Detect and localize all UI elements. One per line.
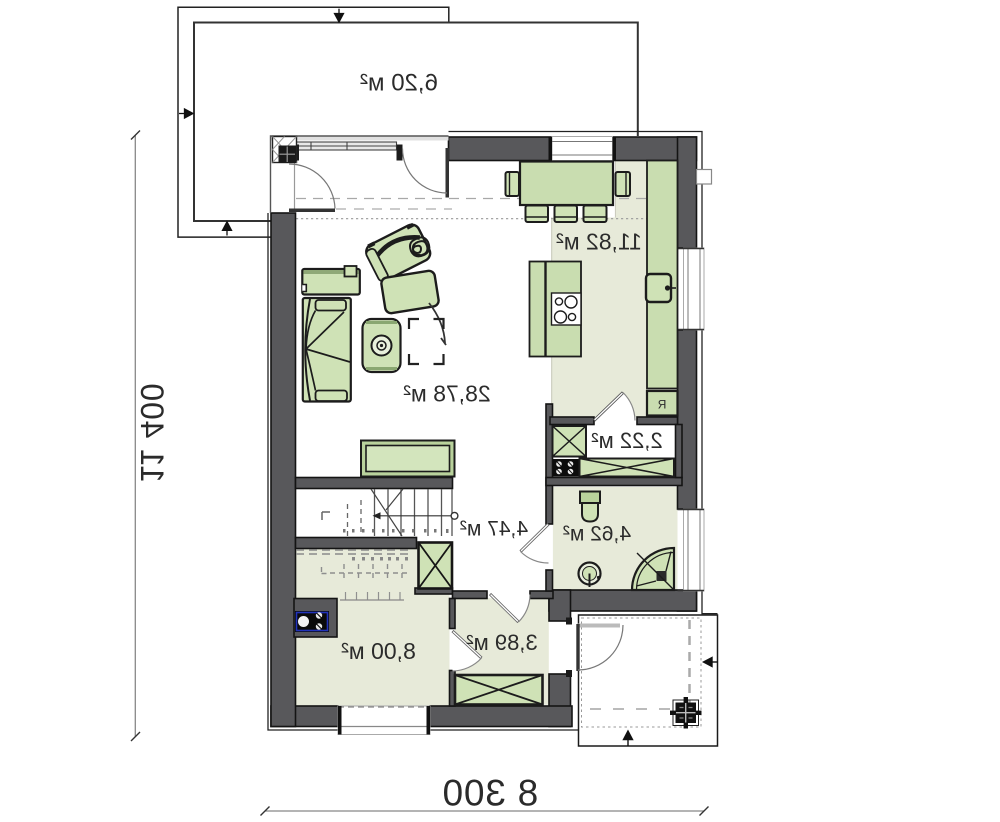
svg-text:2,22 м²: 2,22 м² [591, 428, 662, 453]
svg-text:11,82 м²: 11,82 м² [556, 229, 642, 255]
svg-text:28,78 м²: 28,78 м² [403, 381, 491, 407]
svg-text:6,20 м²: 6,20 м² [360, 70, 438, 97]
svg-text:8,00 м²: 8,00 м² [341, 638, 416, 664]
svg-text:4,47 м²: 4,47 м² [460, 518, 528, 541]
svg-text:11 400: 11 400 [134, 383, 170, 483]
svg-text:8 300: 8 300 [442, 773, 539, 814]
svg-text:3,89 м²: 3,89 м² [466, 630, 537, 655]
svg-text:R: R [657, 398, 666, 412]
svg-text:4,62 м²: 4,62 м² [563, 523, 631, 546]
